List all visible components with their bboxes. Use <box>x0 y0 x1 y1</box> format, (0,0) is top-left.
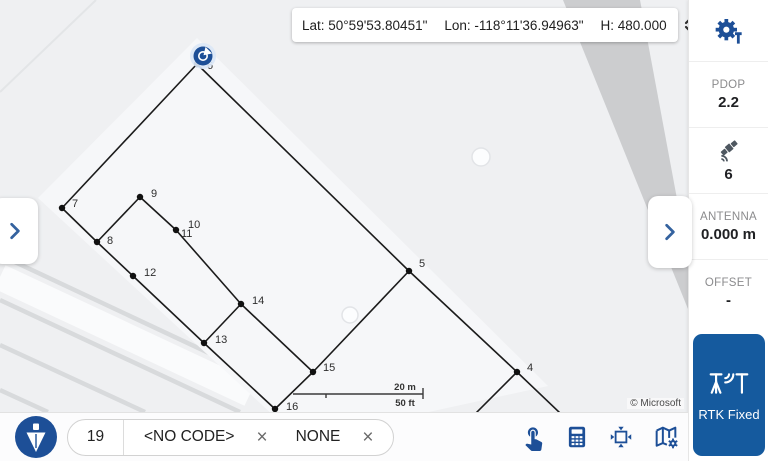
instrument-settings-button[interactable] <box>689 0 768 62</box>
antenna-panel[interactable]: ANTENNA 0.000 m <box>689 194 768 260</box>
survey-point-label-7: 7 <box>72 198 78 210</box>
survey-point-12[interactable] <box>130 273 136 279</box>
survey-point-label-13: 13 <box>215 334 227 346</box>
offset-panel[interactable]: OFFSET - <box>689 260 768 325</box>
survey-point-label-4: 4 <box>527 362 533 374</box>
pdop-panel[interactable]: PDOP 2.2 <box>689 62 768 128</box>
attribute-field[interactable]: NONE <box>296 428 341 446</box>
map-settings-icon <box>652 423 680 451</box>
survey-point-13[interactable] <box>201 340 207 346</box>
status-sidebar: PDOP 2.2 6 ANTENNA 0.000 m OFFSET - <box>688 0 768 461</box>
scale-imperial-label: 50 ft <box>395 398 415 409</box>
survey-point-11[interactable] <box>173 227 179 233</box>
pill-divider <box>123 420 124 455</box>
survey-point-label-8: 8 <box>107 235 113 247</box>
tap-select-button[interactable] <box>520 424 547 451</box>
survey-point-8[interactable] <box>94 239 100 245</box>
survey-point-label-5: 5 <box>419 258 425 270</box>
offset-label: OFFSET <box>705 277 752 289</box>
center-extents-icon <box>607 423 635 451</box>
pdop-value: 2.2 <box>718 94 739 111</box>
satellites-count: 6 <box>724 166 732 183</box>
survey-point-label-9: 9 <box>151 188 157 200</box>
map-attribution: © Microsoft <box>627 398 684 409</box>
satellite-icon <box>715 139 743 163</box>
rtk-status-label: RTK Fixed <box>698 407 759 422</box>
code-field[interactable]: <NO CODE> <box>144 428 234 446</box>
survey-point-label-15: 15 <box>323 362 335 374</box>
survey-point-14[interactable] <box>238 301 244 307</box>
left-panel-expander[interactable] <box>0 198 38 264</box>
rtk-status-button[interactable]: RTK Fixed <box>693 334 765 456</box>
code-clear-button[interactable]: × <box>256 428 267 447</box>
survey-point-5[interactable] <box>406 268 412 274</box>
pdop-label: PDOP <box>712 79 746 91</box>
survey-point-label-11: 11 <box>181 228 192 240</box>
antenna-label: ANTENNA <box>700 211 757 223</box>
satellites-panel[interactable]: 6 <box>689 128 768 194</box>
map-poi-circle <box>472 148 490 166</box>
survey-point-9[interactable] <box>137 194 143 200</box>
map-settings-button[interactable] <box>652 423 680 451</box>
point-number-field[interactable]: 19 <box>68 428 123 446</box>
calculator-icon <box>564 424 590 450</box>
height-readout: H: 480.000 <box>601 18 667 33</box>
scale-metric-label: 20 m <box>394 382 416 393</box>
survey-point-15[interactable] <box>310 369 316 375</box>
gear-pole-icon <box>713 16 745 46</box>
coordinate-bar: Lat: 50°59'53.80451" Lon: -118°11'36.949… <box>292 8 678 42</box>
chevron-right-icon <box>9 222 21 240</box>
touch-icon <box>520 424 547 451</box>
latitude-readout: Lat: 50°59'53.80451" <box>302 18 427 33</box>
rtk-base-rover-icon <box>706 369 752 397</box>
longitude-readout: Lon: -118°11'36.94963" <box>444 18 583 33</box>
survey-app-window: 45678910111213141516 20 m 50 ft © Micros… <box>0 0 768 461</box>
map-poi-circle <box>342 307 358 323</box>
survey-point-label-16: 16 <box>286 401 298 412</box>
store-point-button[interactable] <box>14 415 58 459</box>
antenna-value: 0.000 m <box>701 226 756 243</box>
survey-point-label-14: 14 <box>252 295 264 307</box>
right-panel-expander[interactable] <box>648 196 692 268</box>
gnss-position-marker <box>190 43 216 69</box>
map-canvas[interactable]: 45678910111213141516 20 m 50 ft © Micros… <box>0 0 688 412</box>
survey-point-7[interactable] <box>59 205 65 211</box>
calculator-button[interactable] <box>564 424 590 450</box>
map-tool-icons <box>520 423 680 451</box>
offset-value: - <box>726 292 731 309</box>
chevron-right-icon <box>664 223 676 241</box>
center-on-position-button[interactable] <box>607 423 635 451</box>
survey-point-label-12: 12 <box>144 267 156 279</box>
survey-point-4[interactable] <box>514 369 520 375</box>
point-attributes-bar: 19 <NO CODE> × NONE × <box>67 419 394 456</box>
bottom-toolbar: 19 <NO CODE> × NONE × <box>0 412 688 461</box>
gear-icon <box>668 439 677 449</box>
attribute-clear-button[interactable]: × <box>362 428 373 447</box>
